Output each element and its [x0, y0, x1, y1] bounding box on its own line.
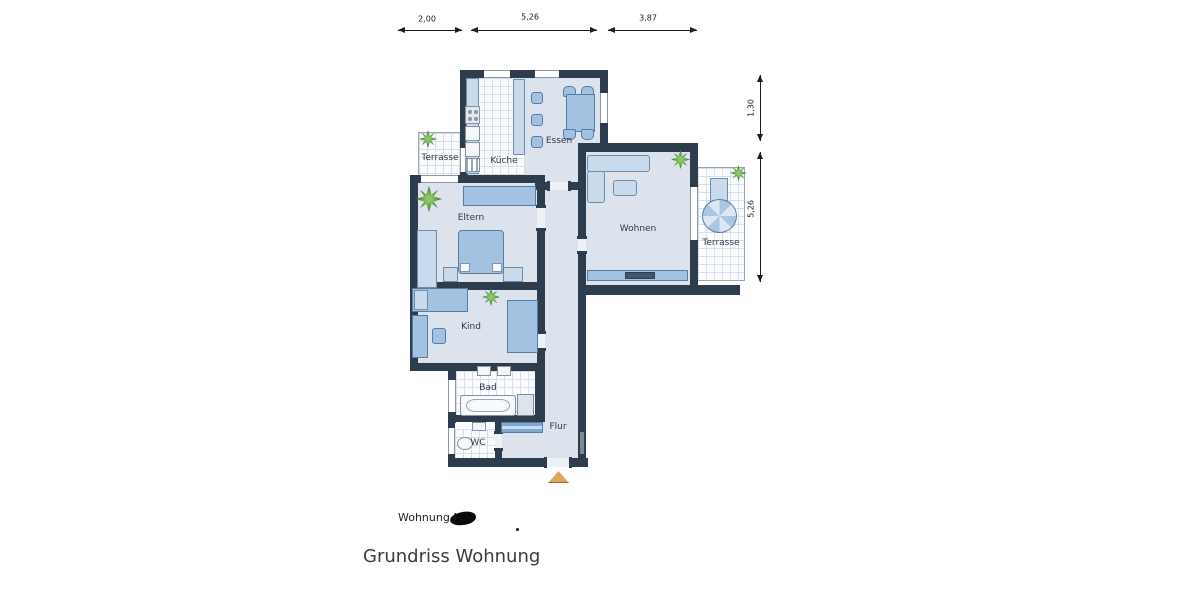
flur-floor-upper — [545, 175, 578, 458]
entrance-door — [545, 458, 571, 467]
kitchen-fridge — [465, 142, 480, 157]
sofa — [587, 171, 605, 203]
dimension-label: 5,26 — [747, 200, 756, 218]
door-flur — [548, 182, 570, 190]
entrance-arrow-icon — [548, 471, 569, 483]
window — [600, 93, 608, 123]
dimension-label: 2,00 — [418, 15, 436, 24]
desk — [412, 315, 428, 358]
room-label-bad: Bad — [479, 383, 496, 393]
desk-chair — [432, 328, 446, 344]
closet — [417, 230, 437, 288]
pillow — [414, 290, 428, 310]
wall — [578, 143, 698, 152]
bar-stool — [531, 136, 543, 148]
window — [484, 70, 510, 78]
window — [421, 175, 458, 183]
kitchen-island — [513, 79, 525, 155]
bar-stool — [531, 92, 543, 104]
dining-table — [566, 94, 595, 132]
small-dot — [516, 528, 519, 531]
arrowhead-icon — [398, 27, 405, 33]
room-label-terrasse-left: Terrasse — [421, 153, 458, 163]
page-title: Grundriss Wohnung — [363, 546, 540, 567]
door-wc — [495, 432, 502, 450]
tv-icon — [625, 272, 655, 279]
nightstand — [443, 267, 458, 282]
pillow — [492, 263, 502, 272]
room-label-wc: WC — [470, 438, 485, 448]
room-label-flur: Flur — [549, 422, 566, 432]
wardrobe — [507, 300, 538, 353]
wall — [578, 143, 586, 295]
washbasin-icon — [472, 422, 486, 431]
door-size-marking — [580, 432, 584, 454]
kitchen-oven — [465, 126, 480, 141]
coffee-table — [613, 180, 637, 196]
door-wohnen — [578, 237, 586, 253]
arrowhead-icon — [690, 27, 697, 33]
room-label-wohnen: Wohnen — [620, 224, 657, 234]
arrowhead-icon — [608, 27, 615, 33]
room-label-kueche: Küche — [490, 156, 517, 166]
washbasin-icon — [497, 366, 511, 376]
bar-stool — [531, 114, 543, 126]
arrowhead-icon — [590, 27, 597, 33]
wall — [537, 183, 545, 282]
washbasin-icon — [477, 366, 491, 376]
arrowhead-icon — [471, 27, 478, 33]
floorplan-canvas: 2,00 5,26 3,87 1,30 5,26 — [0, 0, 1200, 600]
dimension-label: 3,87 — [639, 14, 657, 23]
bathtub-icon — [460, 395, 516, 416]
arrowhead-icon — [757, 134, 763, 141]
dining-chair — [581, 129, 594, 140]
pillow — [460, 263, 470, 272]
window — [448, 380, 456, 412]
wall — [535, 363, 545, 422]
wall — [460, 70, 608, 78]
dimension-label: 5,26 — [521, 13, 539, 22]
wall — [448, 415, 543, 422]
shower-icon — [517, 394, 534, 416]
nightstand — [503, 267, 523, 282]
room-label-eltern: Eltern — [458, 213, 485, 223]
sofa — [587, 155, 650, 172]
room-label-essen: Essen — [546, 136, 572, 146]
dimension-label: 1,30 — [747, 99, 756, 117]
arrowhead-icon — [455, 27, 462, 33]
door-eltern — [537, 206, 545, 230]
wall — [578, 285, 740, 295]
window — [690, 187, 698, 240]
dishwasher-icon — [465, 158, 480, 172]
arrowhead-icon — [757, 275, 763, 282]
parasol-table-icon — [702, 199, 737, 233]
window — [535, 70, 559, 78]
window — [448, 428, 455, 454]
plant-icon — [482, 288, 500, 306]
stove-icon — [465, 106, 480, 124]
arrowhead-icon — [757, 152, 763, 159]
hall-shelf — [501, 422, 543, 433]
wardrobe — [463, 186, 536, 206]
arrowhead-icon — [757, 75, 763, 82]
room-label-terrasse-right: Terrasse — [702, 238, 739, 248]
door-kind — [537, 332, 545, 350]
room-label-kind: Kind — [461, 322, 481, 332]
